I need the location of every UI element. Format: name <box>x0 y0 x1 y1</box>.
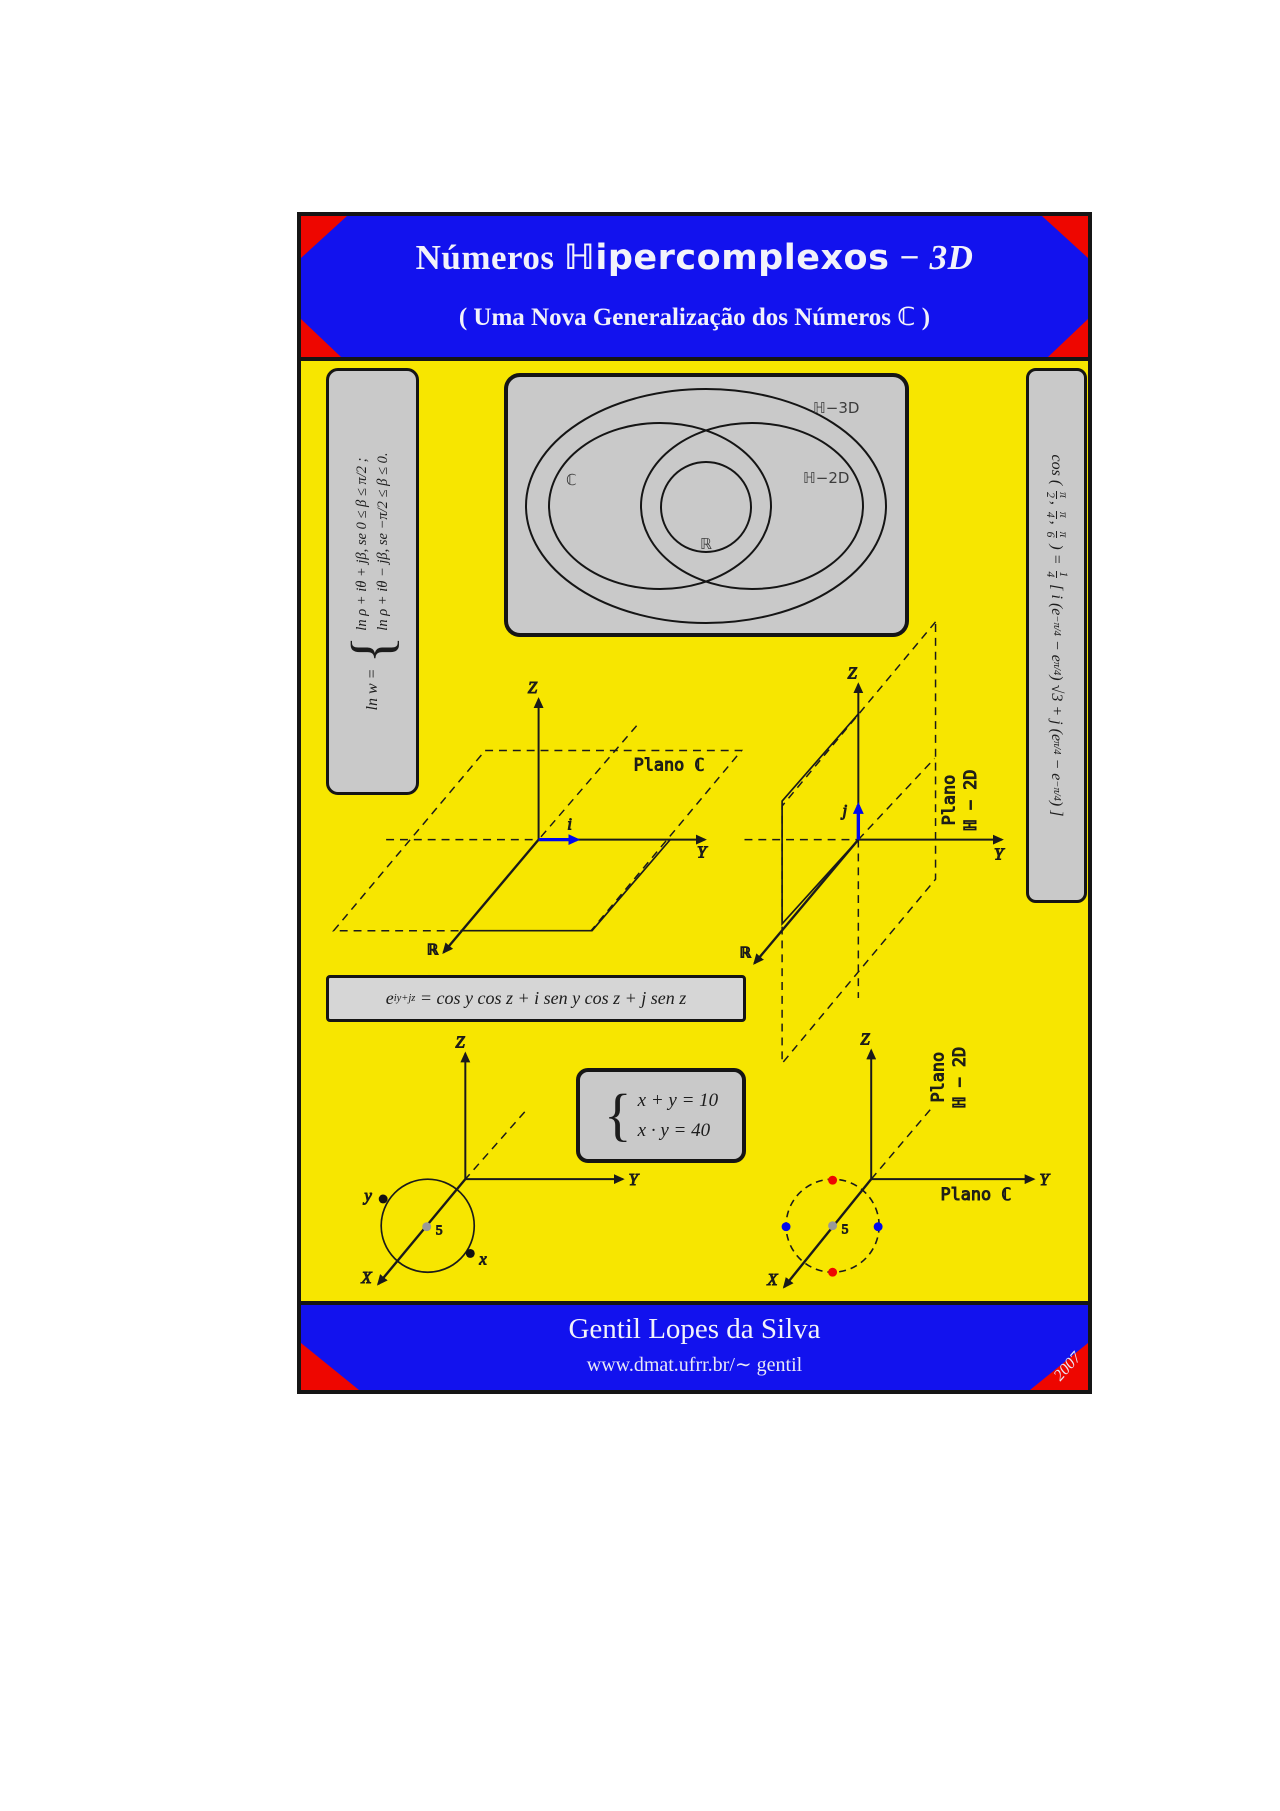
plot3-dot-x-label: x <box>478 1249 487 1268</box>
cos-f3-num: π <box>1057 532 1069 538</box>
plot2-z-label: Z <box>847 663 857 682</box>
title-part-1: Números <box>416 238 555 277</box>
plot4-plane-label-line1: Plano <box>927 1052 947 1103</box>
cos-sup2: π/4 <box>1051 662 1062 675</box>
plot-plano-h2d: Z Y ℝ j Plano ℍ − 2D <box>740 622 1005 1064</box>
cos-sup1: −π/4 <box>1051 615 1062 636</box>
cos-sup3: π/4 <box>1051 741 1062 754</box>
plot2-plane-label-line2: ℍ − 2D <box>960 770 980 831</box>
poster-title: Números ℍipercomplexos − 3D <box>301 238 1088 278</box>
cos-f4-den: 4 <box>1044 571 1057 579</box>
system-eq-1: x + y = 10 <box>638 1090 719 1112</box>
plot2-y-label: Y <box>994 844 1005 863</box>
title-part-2: ℍipercomplexos <box>564 238 890 278</box>
footer-band: Gentil Lopes da Silva www.dmat.ufrr.br/∼… <box>301 1301 1088 1390</box>
euler-formula-box: eiy+jz = cos y cos z + i sen y cos z + j… <box>326 975 746 1022</box>
plot2-x-label: ℝ <box>740 944 752 961</box>
cos-f1-den: 2 <box>1044 491 1057 499</box>
ln-formula-box: ln w = { ln ρ + iθ + jβ, se 0 ≤ β ≤ π/2 … <box>326 368 419 795</box>
plot1-i-label: i <box>567 815 572 834</box>
euler-exponent: iy+jz <box>394 993 416 1004</box>
plot4-x-label: X <box>766 1270 778 1289</box>
plot1-x-label: ℝ <box>427 941 439 958</box>
header-band: Números ℍipercomplexos − 3D ( Uma Nova G… <box>301 216 1088 361</box>
venn-diagram: ℍ−3D ℍ−2D ℂ ℝ <box>508 377 906 634</box>
plot4-center-label: 5 <box>842 1222 849 1237</box>
ln-case-2: ln ρ + iθ − jβ, se −π/2 ≤ β ≤ 0. <box>375 453 392 631</box>
plot3-dot-y-label: y <box>362 1186 372 1205</box>
cos-comma1: , <box>1048 501 1066 509</box>
cos-formula-box: cos ( π2, π4, π6 ) = 14 [ i (e−π/4 − eπ/… <box>1026 368 1087 903</box>
ln-formula-rotated: ln w = { ln ρ + iθ + jβ, se 0 ≤ β ≤ π/2 … <box>329 371 416 792</box>
title-part-3: − 3D <box>899 238 974 277</box>
cos-p7: ) ] <box>1048 801 1066 817</box>
page: { "colors": { "background_yellow": "#F7E… <box>0 0 1280 1811</box>
author-name: Gentil Lopes da Silva <box>301 1313 1088 1346</box>
plot1-y-label: Y <box>697 842 708 861</box>
system-equations-box: { x + y = 10 x · y = 40 <box>576 1068 746 1163</box>
cos-sup4: −π/4 <box>1051 780 1062 801</box>
plot3-x-label: X <box>360 1268 372 1287</box>
venn-label-c: ℂ <box>566 471 576 489</box>
ln-brace: { <box>346 636 398 664</box>
plot4-z-label: Z <box>860 1030 870 1049</box>
plot3-y-label: Y <box>629 1170 640 1189</box>
cos-f3-den: 6 <box>1044 531 1057 539</box>
system-eq-2: x · y = 40 <box>638 1120 719 1142</box>
ln-prefix: ln w = <box>364 669 382 711</box>
cos-p2: ) = <box>1048 540 1066 568</box>
plot3-z-label: Z <box>455 1033 465 1052</box>
plot1-plane-label: Plano ℂ <box>634 754 705 774</box>
cos-p6: − e <box>1048 754 1066 780</box>
euler-rest: = cos y cos z + i sen y cos z + j sen z <box>415 988 686 1009</box>
cos-p1: cos ( <box>1048 455 1066 490</box>
plot2-j-label: j <box>840 801 847 820</box>
plot-solutions-h2d: Z Y X 5 Plano ℍ − 2D Plano ℂ <box>766 1030 1050 1290</box>
cos-comma2: , <box>1048 521 1066 529</box>
cos-f4-num: 1 <box>1057 572 1069 578</box>
plot4-y-label: Y <box>1039 1170 1050 1189</box>
cos-p3: [ i (e <box>1048 580 1066 615</box>
system-brace: { <box>604 1089 632 1141</box>
plot3-center-label: 5 <box>436 1223 443 1238</box>
venn-label-h3d: ℍ−3D <box>813 399 859 417</box>
plot2-plane-label-line1: Plano <box>938 775 958 826</box>
cos-f1-num: π <box>1057 492 1069 498</box>
poster-subtitle: ( Uma Nova Generalização dos Números ℂ ) <box>301 302 1088 332</box>
ln-case-1: ln ρ + iθ + jβ, se 0 ≤ β ≤ π/2 ; <box>354 453 371 631</box>
venn-label-r: ℝ <box>700 535 712 553</box>
author-url: www.dmat.ufrr.br/∼ gentil <box>301 1352 1088 1377</box>
cos-p5: ) √3 + j (e <box>1048 675 1066 741</box>
venn-label-h2d: ℍ−2D <box>803 469 849 487</box>
euler-base: e <box>386 988 394 1009</box>
cos-f2-den: 4 <box>1044 511 1057 519</box>
plot4-plane-label-line2: ℍ − 2D <box>949 1047 969 1108</box>
poster: Números ℍipercomplexos − 3D ( Uma Nova G… <box>297 212 1092 1394</box>
cos-formula-rotated: cos ( π2, π4, π6 ) = 14 [ i (e−π/4 − eπ/… <box>1029 371 1084 900</box>
venn-diagram-box: ℍ−3D ℍ−2D ℂ ℝ <box>504 373 909 637</box>
plot4-plane-c-label: Plano ℂ <box>940 1184 1011 1204</box>
plot1-z-label: Z <box>528 678 538 697</box>
cos-p4: − e <box>1048 636 1066 662</box>
cos-f2-num: π <box>1057 512 1069 518</box>
